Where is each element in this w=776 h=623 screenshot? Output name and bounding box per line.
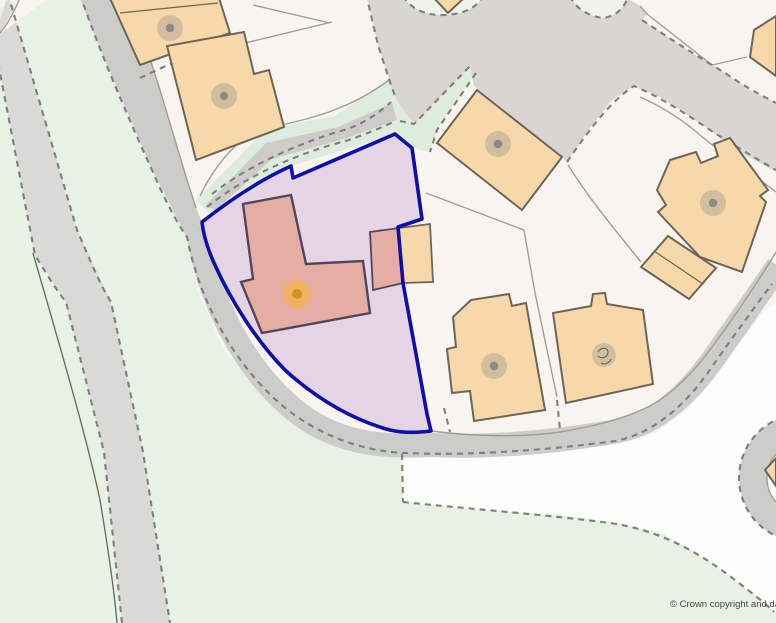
gray-dot-icon <box>490 362 498 370</box>
gray-dot-icon <box>494 140 502 148</box>
map-canvas[interactable]: © Crown copyright and dat <box>0 0 776 623</box>
gray-dot-icon <box>220 92 228 100</box>
selected-property-marker <box>283 280 311 308</box>
map-viewport[interactable]: © Crown copyright and dat <box>0 0 776 623</box>
copyright-notice: © Crown copyright and dat <box>670 599 776 610</box>
gray-dot-icon <box>166 24 174 32</box>
orange-dot-icon <box>292 289 302 299</box>
building-annex-outside <box>399 224 433 283</box>
gray-dot-icon <box>709 199 717 207</box>
